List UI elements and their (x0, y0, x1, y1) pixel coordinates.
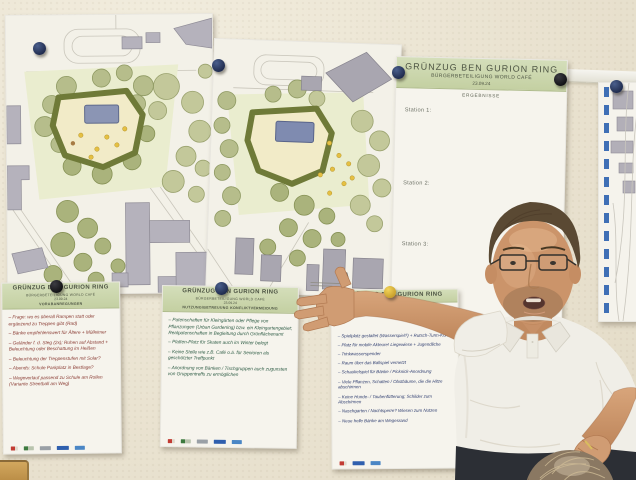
results-flipchart-header: GRÜNZUG BEN GURION RING BÜRGERBETEILIGUN… (396, 57, 567, 92)
push-pin-icon (50, 280, 63, 293)
site-plan-center-poster (205, 38, 402, 298)
note-item: Keine Hunde- / Taubenfütterung; Schilder… (338, 393, 454, 405)
polo-placket (527, 334, 538, 358)
pre-notes-flipchart: GRÜNZUG BEN GURION RING BÜRGERBETEILIGUN… (1, 281, 122, 454)
frankfurt-crest-logo-icon (168, 439, 175, 444)
note-item: Schaukelspiel für Bänke / Picknick-Anord… (338, 369, 454, 376)
flipchart-topic: VORABANREGUNGEN (3, 301, 118, 307)
push-pin-icon (610, 80, 623, 93)
note-item: Beleuchtung der Treppenstufen mit Solar? (9, 355, 116, 362)
wedding-ring (585, 441, 592, 449)
push-pin-icon (384, 286, 396, 298)
presenter-pants (455, 446, 636, 480)
note-item: Spielplatz gestaltet (Wasserspiel?) + Ru… (338, 332, 454, 339)
planner-logo-icon (371, 461, 381, 466)
station-2-label: Station 2: (403, 180, 430, 187)
handwritten-notes: Frage: wo es überall Rampen statt oder e… (2, 309, 120, 388)
site-plan-left-drawing (6, 14, 214, 294)
green-partner-logo-icon (181, 439, 191, 444)
gray-partner-logo-icon (197, 439, 208, 444)
blue-partner-logo-icon (353, 461, 365, 466)
station3-notes-flipchart: GRÜNZUG BEN GURION RING Spielplatz gesta… (330, 289, 459, 470)
note-item: Frage: wo es überall Rampen statt oder e… (8, 314, 115, 327)
note-item: Patenschaften für Kleingärten oder Pfleg… (168, 318, 293, 338)
push-pin-icon (554, 73, 567, 86)
partner-logos-row (11, 445, 114, 451)
note-item: Abends: Schule Parkplatz in Bestlage? (9, 365, 116, 372)
planner-logo-icon (232, 439, 242, 444)
pavilion-building (85, 105, 119, 123)
note-item: Keine Stelle wie z.B. Café o.ä. für Seni… (168, 349, 293, 363)
presenter-right-hand (567, 429, 617, 476)
note-item: Naschgarten / Nachtsperre? Wiesen zum Nu… (338, 408, 454, 415)
note-item: Geländer f. d. Steg (2x); Ruhen auf Abst… (9, 339, 116, 352)
shirt-folds (464, 352, 603, 447)
gray-partner-logo-icon (40, 446, 51, 451)
use-notes-flipchart: GRÜNZUG BEN GURION RING BÜRGERBETEILIGUN… (160, 285, 299, 449)
flipchart-topic: NUTZUNG/BETREUUNG KONFLIKTVERMEIDUNG (164, 305, 297, 311)
results-section-label: ERGEBNISSE (396, 91, 566, 100)
city-map-drawing (599, 83, 636, 321)
blue-partner-logo-icon (214, 439, 226, 444)
frankfurt-crest-logo-icon (11, 446, 18, 451)
note-item: Platten-Platz für Skaten auch im Winter … (168, 339, 293, 347)
city-map-poster (598, 82, 636, 322)
note-item: Neue helle Bänke am Wegesrand (338, 417, 454, 424)
participant-head (525, 450, 615, 480)
planner-logo-icon (75, 445, 85, 450)
partner-logos-row (340, 460, 452, 465)
site-plan-center-drawing (206, 39, 401, 297)
use-notes-header: GRÜNZUG BEN GURION RING BÜRGERBETEILIGUN… (163, 286, 298, 314)
push-pin-icon (392, 66, 405, 79)
note-item: Viele Pflanzen, Schatten / Obstbäume, di… (338, 378, 454, 390)
note-item: Raum über das Ballspiel vernetzt (338, 360, 454, 367)
presenter-torso (454, 315, 636, 480)
note-item: Wegeverlauf passend zu Schule am Rollen … (9, 374, 116, 387)
pavilion-building (275, 121, 314, 142)
note-item: Trinkwasserspender (338, 351, 454, 358)
blue-partner-logo-icon (57, 445, 69, 450)
note-item: Bänke empfehlenswert für Ältere + Müllei… (9, 330, 116, 337)
green-partner-logo-icon (24, 446, 34, 451)
playground-area (52, 91, 143, 168)
presenter-right-forearm (582, 388, 636, 455)
photo-workshop-scene: GRÜNZUG BEN GURION RING BÜRGERBETEILIGUN… (0, 0, 636, 480)
note-item: Platz für mobile Akteure! Liegewiese + J… (338, 341, 454, 348)
handwritten-notes: Patenschaften für Kleingärten oder Pfleg… (162, 312, 298, 378)
push-pin-icon (33, 42, 46, 55)
presenter-ear (569, 264, 581, 284)
station-1-label: Station 1: (405, 107, 432, 114)
partner-logos-row (168, 439, 289, 445)
handwritten-notes: Spielplatz gestaltet (Wasserspiel?) + Ru… (331, 302, 458, 424)
frankfurt-crest-logo-icon (340, 461, 347, 466)
site-plan-left-poster (5, 13, 215, 295)
chair-backrest (0, 460, 29, 480)
station-3-label: Station 3: (402, 241, 429, 248)
note-item: Anordnung von Bänken / Tischgruppen auch… (168, 365, 293, 379)
push-pin-icon (212, 59, 225, 72)
hair-strands (534, 452, 605, 480)
push-pin-icon (215, 282, 228, 295)
